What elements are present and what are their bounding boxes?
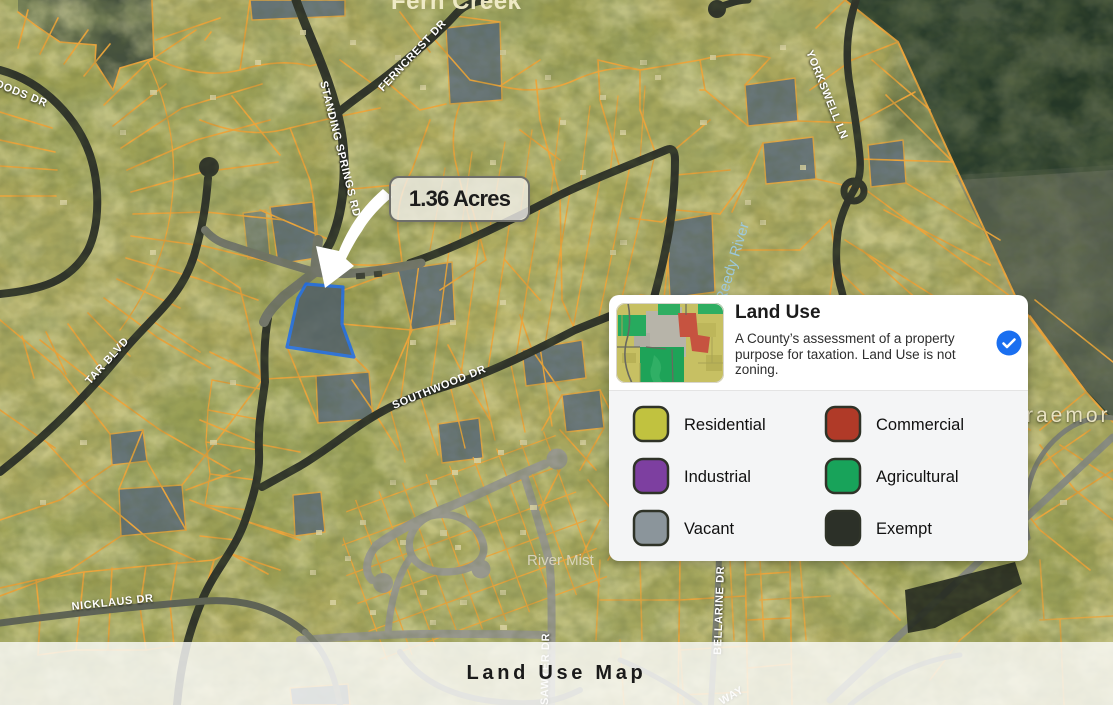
svg-text:River Mist: River Mist [527, 552, 594, 569]
svg-text:raemor: raemor [1026, 404, 1111, 427]
svg-text:Residential: Residential [684, 416, 766, 434]
svg-text:Commercial: Commercial [876, 416, 964, 434]
svg-text:Fern Creek: Fern Creek [391, 0, 522, 15]
svg-text:Industrial: Industrial [684, 468, 751, 486]
svg-text:Agricultural: Agricultural [876, 468, 959, 486]
svg-text:Vacant: Vacant [684, 520, 735, 538]
svg-text:Exempt: Exempt [876, 520, 932, 538]
